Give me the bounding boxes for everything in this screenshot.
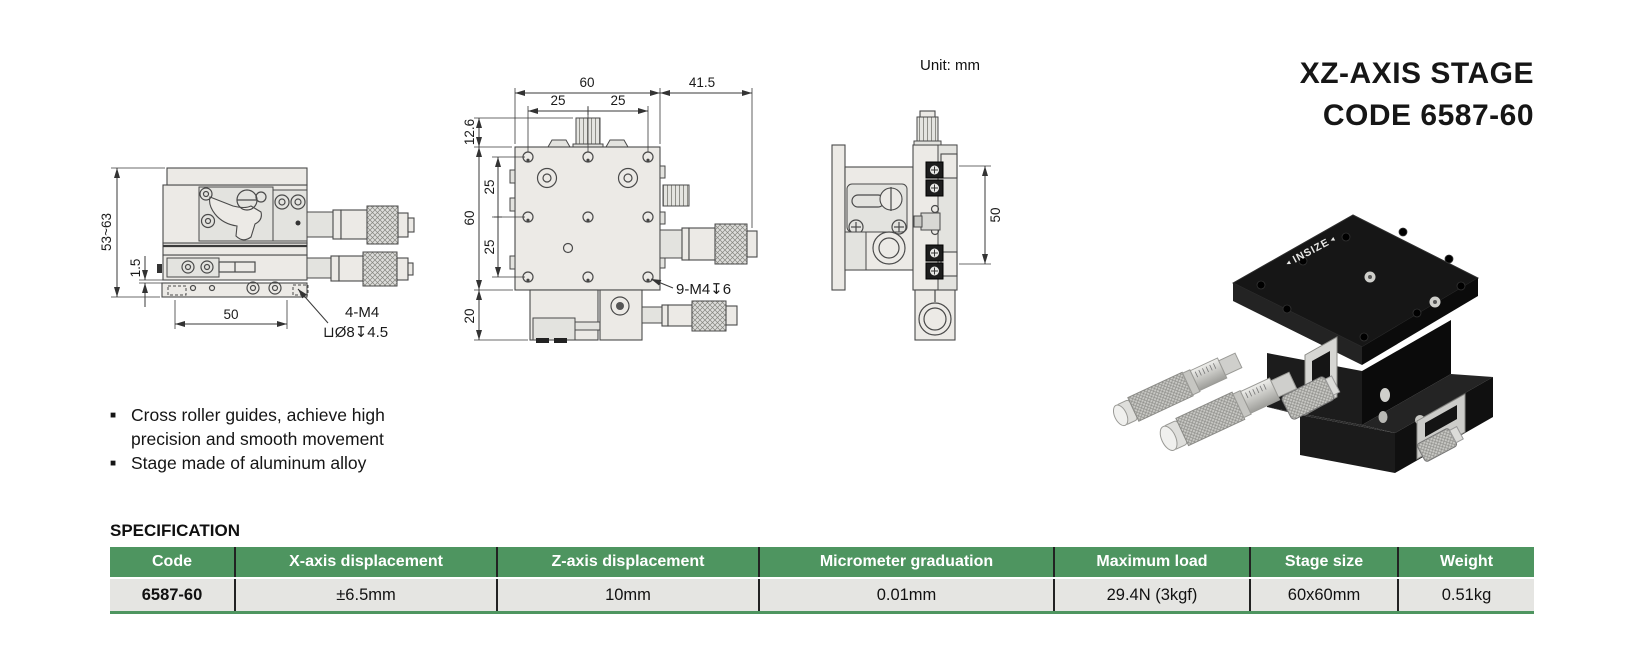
micrometer-upper bbox=[307, 206, 414, 244]
spec-header-stage-size: Stage size bbox=[1250, 547, 1398, 578]
note-4m4: 4-M4 bbox=[345, 304, 379, 321]
spec-header-graduation: Micrometer graduation bbox=[759, 547, 1054, 578]
dim-height: 50 bbox=[988, 207, 1003, 222]
spec-cell-z-displacement: 10mm bbox=[497, 578, 759, 613]
dim-top-offset: 12.6 bbox=[462, 119, 477, 145]
dim-left-pitch-lower: 25 bbox=[482, 239, 497, 254]
dim-left-total: 60 bbox=[462, 210, 477, 225]
note-counterbore: ⊔Ø8↧4.5 bbox=[323, 324, 388, 341]
stage-body-side bbox=[157, 168, 308, 297]
drawing-side-view: 53~63 1.5 50 4-M4 ⊔Ø8↧4.5 bbox=[95, 140, 440, 345]
spec-cell-stage-size: 60x60mm bbox=[1250, 578, 1398, 613]
product-title-line2: CODE 6587-60 bbox=[1300, 95, 1534, 137]
dim-base-gap: 1.5 bbox=[128, 259, 143, 278]
spec-cell-x-displacement: ±6.5mm bbox=[235, 578, 497, 613]
feature-item: ■ Cross roller guides, achieve high prec… bbox=[110, 403, 470, 451]
micrometer-z bbox=[642, 301, 737, 331]
spec-cell-graduation: 0.01mm bbox=[759, 578, 1054, 613]
product-photo-svg: INSIZE bbox=[1065, 185, 1505, 475]
dim-micrometer-len: 41.5 bbox=[689, 75, 715, 90]
spec-data-row: 6587-60 ±6.5mm 10mm 0.01mm 29.4N (3kgf) … bbox=[110, 578, 1534, 613]
dim-width: 50 bbox=[223, 307, 238, 322]
spec-header-z-displacement: Z-axis displacement bbox=[497, 547, 759, 578]
feature-list: ■ Cross roller guides, achieve high prec… bbox=[110, 403, 470, 476]
spec-cell-max-load: 29.4N (3kgf) bbox=[1054, 578, 1250, 613]
unit-label: Unit: mm bbox=[920, 57, 980, 74]
stage-body-front bbox=[832, 111, 957, 340]
dim-height-range: 53~63 bbox=[99, 213, 114, 251]
product-title-line1: XZ-AXIS STAGE bbox=[1300, 53, 1534, 95]
dim-width-total: 60 bbox=[579, 75, 594, 90]
dim-pitch-right: 25 bbox=[610, 93, 625, 108]
bottom-carriage bbox=[530, 290, 642, 343]
dim-bottom-height: 20 bbox=[462, 308, 477, 323]
spec-header-max-load: Maximum load bbox=[1054, 547, 1250, 578]
x-knob bbox=[663, 185, 689, 206]
spec-header-row: Code X-axis displacement Z-axis displace… bbox=[110, 547, 1534, 578]
product-title: XZ-AXIS STAGE CODE 6587-60 bbox=[1300, 53, 1534, 137]
micrometer-x bbox=[660, 224, 757, 264]
side-view-svg: 53~63 1.5 50 4-M4 ⊔Ø8↧4.5 bbox=[95, 140, 440, 345]
spec-header-x-displacement: X-axis displacement bbox=[235, 547, 497, 578]
spec-cell-weight: 0.51kg bbox=[1398, 578, 1534, 613]
dim-left-pitch-upper: 25 bbox=[482, 179, 497, 194]
stage-platform-top bbox=[510, 118, 689, 290]
drawing-front-view: 50 bbox=[770, 100, 1005, 350]
spec-heading: SPECIFICATION bbox=[110, 521, 240, 541]
feature-text: Cross roller guides, achieve high precis… bbox=[131, 403, 416, 451]
spec-table: Code X-axis displacement Z-axis displace… bbox=[110, 547, 1534, 614]
note-holes: 9-M4↧6 bbox=[676, 281, 731, 298]
feature-item: ■ Stage made of aluminum alloy bbox=[110, 451, 470, 476]
spec-cell-code: 6587-60 bbox=[110, 578, 235, 613]
front-view-dimensions: 50 bbox=[959, 166, 1003, 264]
bullet-icon: ■ bbox=[110, 403, 131, 451]
bullet-icon: ■ bbox=[110, 451, 131, 476]
spec-header-weight: Weight bbox=[1398, 547, 1534, 578]
dim-pitch-left: 25 bbox=[550, 93, 565, 108]
top-view-svg: 60 41.5 25 25 12.6 60 25 25 20 9-M4↧6 bbox=[430, 60, 765, 350]
micrometer-lower bbox=[307, 252, 413, 286]
product-photo: INSIZE bbox=[1065, 185, 1505, 475]
spec-header-code: Code bbox=[110, 547, 235, 578]
front-view-svg: 50 bbox=[770, 100, 1005, 350]
feature-text: Stage made of aluminum alloy bbox=[131, 451, 416, 476]
drawing-top-view: 60 41.5 25 25 12.6 60 25 25 20 9-M4↧6 bbox=[430, 60, 765, 350]
